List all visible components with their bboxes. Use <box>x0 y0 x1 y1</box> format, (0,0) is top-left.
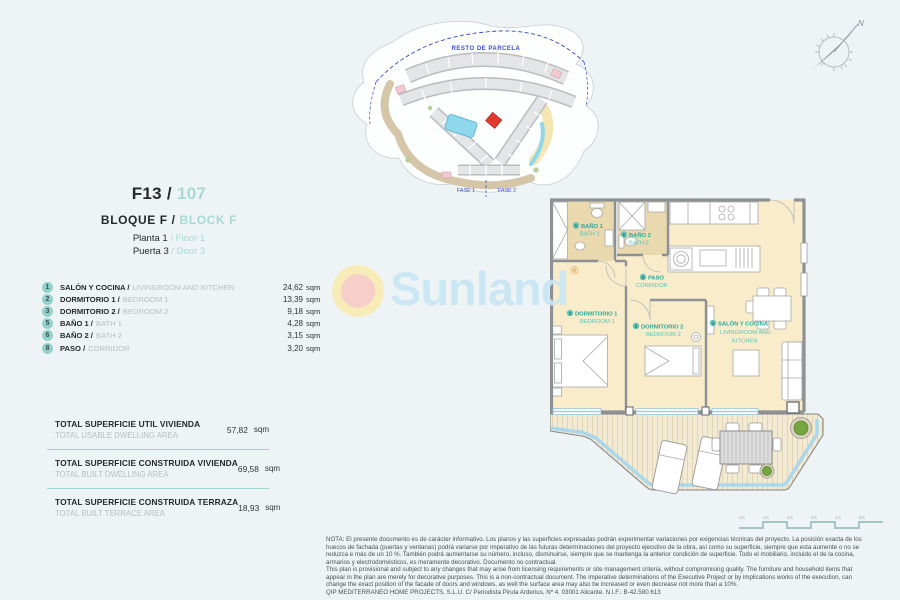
svg-text:BATH 2: BATH 2 <box>629 241 649 247</box>
total-value: 57,82 <box>227 425 248 435</box>
room-area-unit: sqm <box>306 344 322 353</box>
room-name-en: CORRIDOR <box>88 344 129 353</box>
room-area-unit: sqm <box>306 319 322 328</box>
total-built-area: TOTAL SUPERFICIE CONSTRUIDA VIVIENDA TOT… <box>47 449 269 488</box>
svg-text:PASO: PASO <box>648 276 664 282</box>
sunland-watermark: Sunland ® <box>332 263 579 317</box>
bed2-side-table <box>692 333 701 342</box>
floor-line: Planta 1 / Floor 1 <box>38 233 300 244</box>
room-row-salon: 1 SALÓN Y COCINA / LIVINGROOM AND KITCHE… <box>42 281 322 293</box>
room-area-unit: sqm <box>306 307 322 316</box>
legal-line-company: QIP MEDITERRÁNEO HOME PROJECTS, S.L.U. C… <box>326 589 886 597</box>
room-area-value: 13,39 <box>273 295 303 304</box>
room-row-bedroom1: 2 DORMITORIO 1 / BEDROOM 1 13,39 sqm <box>42 293 322 305</box>
block-line: BLOQUE F / BLOCK F <box>38 213 300 227</box>
svg-text:DORMITORIO 1: DORMITORIO 1 <box>575 312 618 318</box>
room-name-es: DORMITORIO 1 / <box>60 295 120 304</box>
room-area-value: 3,20 <box>273 344 303 353</box>
site-plan: RESTO DE PARCELA FASE 1 FASE 2 <box>338 12 633 197</box>
total-unit: sqm <box>265 503 280 512</box>
unit-code-en: 107 <box>177 184 206 203</box>
floor-en: Floor 1 <box>176 233 206 244</box>
salon-sofa <box>782 342 802 400</box>
legal-line: huecos de fachada (puertas y ventanas) p… <box>326 544 886 552</box>
terrace <box>550 414 823 494</box>
unit-title: F13 / 107 <box>38 184 300 204</box>
legal-line: reduzca e más de un 10 %. También podrá … <box>326 551 886 559</box>
svg-text:SALÓN Y COCINA: SALÓN Y COCINA <box>718 320 769 328</box>
room-area-unit: sqm <box>306 283 322 292</box>
room-row-bath2: 6 BAÑO 2 / BATH 2 3,15 sqm <box>42 330 322 342</box>
room-number-badge: 3 <box>42 306 53 317</box>
compass-north-label: N <box>858 19 864 28</box>
kitchen-sink <box>700 250 726 266</box>
block-es: BLOQUE F <box>101 213 168 227</box>
room-row-bath1: 5 BAÑO 1 / BATH 1 4,28 sqm <box>42 318 322 330</box>
room-number-badge: 1 <box>42 282 53 293</box>
room-name-es: SALÓN Y COCINA / <box>60 283 129 292</box>
svg-text:BATH 1: BATH 1 <box>580 232 600 238</box>
total-unit: sqm <box>254 425 269 434</box>
door-line: Puerta 3 / Door 3 <box>38 246 300 257</box>
kitchen-island <box>668 246 760 272</box>
total-label-en: TOTAL USABLE DWELLING AREA <box>55 431 200 440</box>
floor-es: Planta 1 <box>133 233 168 244</box>
door-sep: / <box>171 246 174 257</box>
room-name-en: BEDROOM 2 <box>123 307 169 316</box>
unit-code-es: F13 / <box>132 184 172 203</box>
total-usable-area: TOTAL SUPERFICIE UTIL VIVIENDA TOTAL USA… <box>47 411 269 449</box>
room-area-unit: sqm <box>306 295 322 304</box>
bed1 <box>553 326 608 396</box>
terrace-plant <box>791 418 812 439</box>
room-row-bedroom2: 3 DORMITORIO 2 / BEDROOM 2 9,18 sqm <box>42 305 322 317</box>
svg-text:CORRIDOR: CORRIDOR <box>636 283 668 289</box>
bath2-shower <box>619 202 645 230</box>
legal-disclaimer: NOTA: El presente documento es de caráct… <box>326 536 886 596</box>
legal-line: appear in the plan are merely for decora… <box>326 574 886 582</box>
window-post <box>626 407 633 415</box>
sunland-brand-text: Sunland <box>390 263 568 315</box>
room-name-en: BATH 1 <box>96 319 122 328</box>
unit-header: F13 / 107 BLOQUE F / BLOCK F Planta 1 / … <box>38 184 300 257</box>
total-terrace-area: TOTAL SUPERFICIE CONSTRUIDA TERRAZA TOTA… <box>47 488 269 527</box>
scale-bar: 0m 1m 2m 3m 4m 5m <box>737 512 887 536</box>
bath1-sink <box>605 230 613 246</box>
room-row-corridor: 8 PASO / CORRIDOR 3,20 sqm <box>42 342 322 354</box>
room-area-value: 3,15 <box>273 331 303 340</box>
total-label-es: TOTAL SUPERFICIE CONSTRUIDA TERRAZA <box>55 497 238 507</box>
room-number-badge: 6 <box>42 330 53 341</box>
room-list: 1 SALÓN Y COCINA / LIVINGROOM AND KITCHE… <box>42 281 322 354</box>
svg-text:BAÑO 1: BAÑO 1 <box>581 223 604 230</box>
scale-label: 1m <box>763 515 769 520</box>
sunland-logo-icon <box>332 265 384 317</box>
room-name-es: DORMITORIO 2 / <box>60 307 120 316</box>
door-en: Door 3 <box>177 246 206 257</box>
fase2-label: FASE 2 <box>498 188 516 194</box>
room-name-es: PASO / <box>60 344 85 353</box>
room-area-value: 9,18 <box>273 307 303 316</box>
block-en: BLOCK F <box>180 213 238 227</box>
room-area-value: 4,28 <box>273 319 303 328</box>
total-label-en: TOTAL BUILT DWELLING AREA <box>55 470 238 479</box>
svg-text:KITCHEN: KITCHEN <box>732 339 757 345</box>
terrace-pillar <box>787 402 799 413</box>
legal-line: change the exact position of the facade … <box>326 581 886 589</box>
legal-line: NOTA: El presente documento es de caráct… <box>326 536 886 544</box>
floor-plan: 5 BAÑO 1 BATH 1 6 BAÑO 2 BATH 2 8 PASO C… <box>550 188 885 515</box>
room-name-en: BATH 2 <box>96 331 122 340</box>
room-number-badge: 2 <box>42 294 53 305</box>
room-number-badge: 5 <box>42 318 53 329</box>
room-name-en: BEDROOM 1 <box>123 295 169 304</box>
scale-label: 4m <box>835 515 841 520</box>
total-label-es: TOTAL SUPERFICIE UTIL VIVIENDA <box>55 419 200 429</box>
window-strip <box>553 409 758 415</box>
totals-list: TOTAL SUPERFICIE UTIL VIVIENDA TOTAL USA… <box>47 411 269 527</box>
resto-de-parcela-label: RESTO DE PARCELA <box>452 46 521 52</box>
terrace-plant-small <box>760 464 774 478</box>
room-name-en: LIVINGROOM AND KITCHEN <box>132 283 234 292</box>
room-name-es: BAÑO 1 / <box>60 319 93 328</box>
svg-text:BAÑO 2: BAÑO 2 <box>629 232 651 239</box>
terrace-deck <box>550 414 823 490</box>
legal-line: This plan is provisional and subject to … <box>326 566 886 574</box>
floor-sep: / <box>170 233 173 244</box>
bath1-bidet <box>575 242 585 250</box>
scale-label: 0m <box>739 515 745 520</box>
total-value: 69,58 <box>238 464 259 474</box>
scale-label: 5m <box>859 515 865 520</box>
total-label-es: TOTAL SUPERFICIE CONSTRUIDA VIVIENDA <box>55 458 238 468</box>
svg-text:LIVINGROOM AND: LIVINGROOM AND <box>720 330 771 336</box>
fase1-label: FASE 1 <box>457 188 475 194</box>
total-unit: sqm <box>265 464 280 473</box>
bath2-sink <box>648 202 665 212</box>
room-name-es: BAÑO 2 / <box>60 331 93 340</box>
door-es: Puerta 3 <box>133 246 169 257</box>
total-label-en: TOTAL BUILT TERRACE AREA <box>55 509 238 518</box>
scale-label: 2m <box>787 515 793 520</box>
legal-line: armarios y electrodomésticos, es meramen… <box>326 559 886 567</box>
wardrobe <box>553 202 568 259</box>
room-number-badge: 8 <box>42 343 53 354</box>
svg-text:BEDROOM 1: BEDROOM 1 <box>580 319 615 325</box>
window-post <box>702 407 709 415</box>
compass-icon: N <box>800 16 868 78</box>
room-area-unit: sqm <box>306 331 322 340</box>
block-slash: / <box>172 213 176 227</box>
svg-text:BEDROOM 2: BEDROOM 2 <box>646 332 681 338</box>
salon-coffee-table <box>733 350 759 376</box>
kitchen-counter <box>670 202 758 224</box>
total-value: 18,93 <box>238 503 259 513</box>
svg-text:DORMITORIO 2: DORMITORIO 2 <box>641 325 683 331</box>
scale-label: 3m <box>811 515 817 520</box>
room-area-value: 24,62 <box>273 283 303 292</box>
